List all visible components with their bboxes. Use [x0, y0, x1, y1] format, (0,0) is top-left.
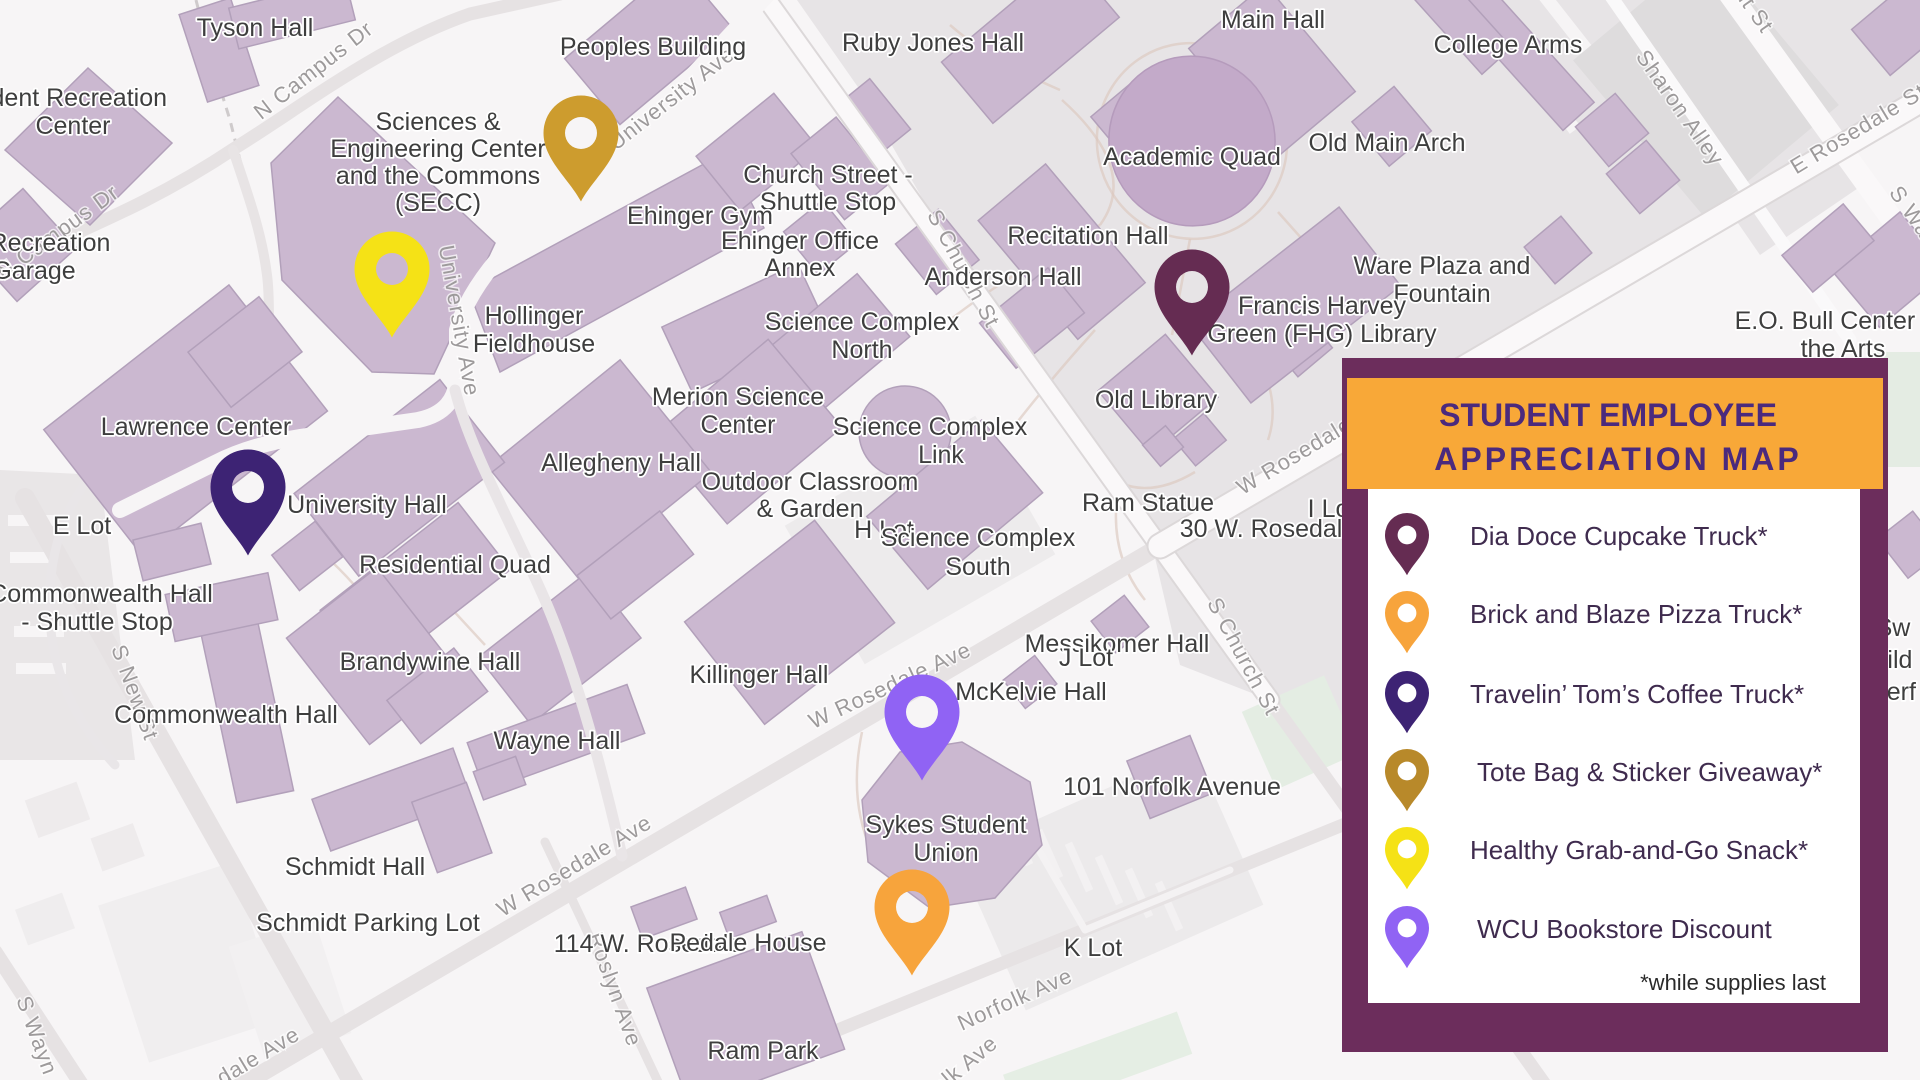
svg-text:Merion Science: Merion Science [652, 383, 824, 411]
svg-text:Brick and Blaze Pizza Truck*: Brick and Blaze Pizza Truck* [1470, 599, 1802, 629]
svg-text:Schmidt Hall: Schmidt Hall [285, 853, 425, 881]
svg-text:APPRECIATION MAP: APPRECIATION MAP [1434, 441, 1801, 477]
svg-text:Lawrence Center: Lawrence Center [101, 413, 291, 441]
svg-text:Science Complex: Science Complex [765, 308, 960, 336]
svg-text:(SECC): (SECC) [395, 189, 481, 217]
svg-text:Ehinger Gym: Ehinger Gym [627, 202, 773, 230]
svg-text:Allegheny Hall: Allegheny Hall [541, 449, 701, 477]
svg-text:Sciences &: Sciences & [375, 108, 500, 136]
svg-text:Wayne Hall: Wayne Hall [494, 727, 621, 755]
svg-text:K Lot: K Lot [1064, 934, 1122, 962]
svg-text:Old Library: Old Library [1095, 386, 1218, 414]
svg-text:Center: Center [35, 112, 110, 140]
svg-text:Dia Doce Cupcake Truck*: Dia Doce Cupcake Truck* [1470, 521, 1768, 551]
svg-text:*while supplies last: *while supplies last [1640, 970, 1826, 995]
svg-text:J Lot: J Lot [1059, 644, 1113, 672]
svg-text:Center: Center [700, 411, 775, 439]
svg-text:Annex: Annex [765, 254, 836, 282]
svg-text:Shuttle Stop: Shuttle Stop [760, 188, 896, 216]
svg-text:Student Recreation: Student Recreation [0, 84, 167, 112]
svg-text:Science Complex: Science Complex [881, 524, 1076, 552]
svg-text:Science Complex: Science Complex [833, 413, 1028, 441]
svg-text:& Garden: & Garden [756, 495, 863, 523]
svg-text:Killinger Hall: Killinger Hall [690, 661, 829, 689]
svg-text:Recreation: Recreation [0, 229, 110, 257]
svg-text:Travelin’ Tom’s Coffee Truck*: Travelin’ Tom’s Coffee Truck* [1470, 679, 1804, 709]
svg-text:Messikomer Hall: Messikomer Hall [1025, 630, 1210, 658]
svg-text:Ram Park: Ram Park [707, 1037, 819, 1065]
svg-text:Brandywine Hall: Brandywine Hall [340, 648, 521, 676]
svg-text:South: South [945, 553, 1010, 581]
svg-text:Union: Union [913, 839, 978, 867]
svg-text:Ehinger Office: Ehinger Office [721, 227, 879, 255]
svg-text:E.O. Bull Center for: E.O. Bull Center for [1735, 307, 1920, 335]
svg-text:Anderson Hall: Anderson Hall [924, 263, 1081, 291]
svg-text:Outdoor Classroom: Outdoor Classroom [702, 468, 919, 496]
svg-text:Garage: Garage [0, 257, 76, 285]
svg-text:Healthy Grab-and-Go Snack*: Healthy Grab-and-Go Snack* [1470, 835, 1808, 865]
svg-text:101 Norfolk Avenue: 101 Norfolk Avenue [1063, 773, 1281, 801]
svg-text:Residential Quad: Residential Quad [359, 551, 551, 579]
svg-text:- Shuttle Stop: - Shuttle Stop [21, 608, 172, 636]
svg-text:Sykes Student: Sykes Student [865, 811, 1026, 839]
svg-text:College Arms: College Arms [1434, 31, 1583, 59]
svg-text:Engineering Center: Engineering Center [330, 135, 545, 163]
svg-text:Fieldhouse: Fieldhouse [473, 330, 595, 358]
svg-text:Link: Link [918, 441, 964, 469]
svg-text:Peoples Building: Peoples Building [560, 33, 746, 61]
svg-text:Green (FHG) Library: Green (FHG) Library [1207, 320, 1437, 348]
svg-text:E Lot: E Lot [53, 512, 111, 540]
svg-text:and the Commons: and the Commons [336, 162, 540, 190]
svg-text:WCU Bookstore Discount: WCU Bookstore Discount [1477, 914, 1773, 944]
svg-text:Tyson Hall: Tyson Hall [197, 14, 314, 42]
svg-text:Academic Quad: Academic Quad [1103, 143, 1281, 171]
svg-text:Old Main Arch: Old Main Arch [1308, 129, 1465, 157]
svg-text:Main Hall: Main Hall [1221, 6, 1325, 34]
svg-text:Fountain: Fountain [1393, 280, 1490, 308]
svg-text:Hollinger: Hollinger [485, 302, 584, 330]
svg-text:Ware Plaza and: Ware Plaza and [1354, 252, 1531, 280]
svg-text:Schmidt Parking Lot: Schmidt Parking Lot [256, 909, 480, 937]
svg-text:Ram Statue: Ram Statue [1082, 489, 1214, 517]
svg-text:North: North [831, 336, 892, 364]
svg-text:University Hall: University Hall [287, 491, 447, 519]
svg-text:STUDENT EMPLOYEE: STUDENT EMPLOYEE [1439, 397, 1777, 433]
svg-text:Recitation Hall: Recitation Hall [1007, 222, 1168, 250]
svg-text:Tote Bag & Sticker Giveaway*: Tote Bag & Sticker Giveaway* [1477, 757, 1822, 787]
svg-text:30 W. Rosedale: 30 W. Rosedale [1180, 515, 1357, 543]
svg-text:Commonwealth Hall: Commonwealth Hall [114, 701, 338, 729]
svg-text:Commonwealth Hall: Commonwealth Hall [0, 580, 213, 608]
svg-text:Francis Harvey: Francis Harvey [1238, 292, 1407, 320]
svg-text:Ruby Jones Hall: Ruby Jones Hall [842, 29, 1024, 57]
svg-text:Church Street -: Church Street - [743, 161, 913, 189]
svg-text:McKelvie Hall: McKelvie Hall [955, 678, 1106, 706]
svg-text:Pedale House: Pedale House [669, 929, 826, 957]
